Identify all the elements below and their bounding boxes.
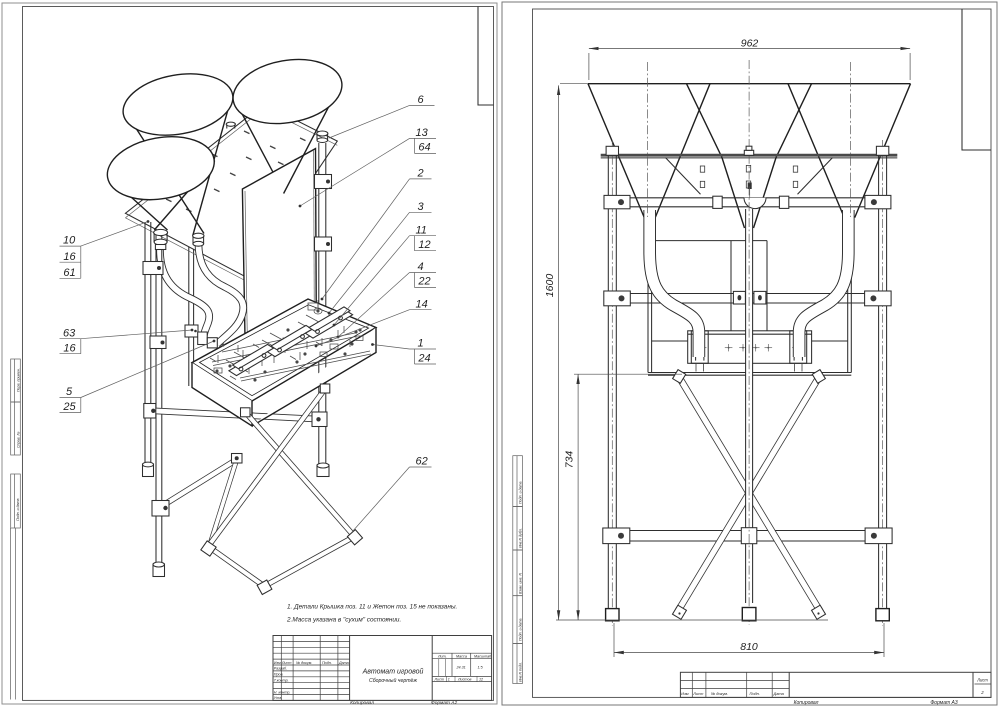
svg-text:Лит.: Лит. bbox=[437, 655, 447, 659]
svg-text:Инв.N дубл.: Инв.N дубл. bbox=[518, 528, 522, 548]
svg-text:2.Масса указана в "сухим" сост: 2.Масса указана в "сухим" состоянии. bbox=[286, 617, 401, 624]
svg-text:62: 62 bbox=[416, 456, 428, 468]
svg-text:Подп. и дата: Подп. и дата bbox=[518, 482, 522, 505]
svg-text:64: 64 bbox=[418, 142, 430, 154]
svg-text:734: 734 bbox=[564, 451, 576, 469]
svg-text:Лист: Лист bbox=[976, 677, 988, 682]
svg-text:13: 13 bbox=[416, 127, 429, 139]
svg-text:Перв. примен.: Перв. примен. bbox=[17, 368, 21, 392]
svg-text:1: 1 bbox=[448, 678, 450, 682]
svg-text:Масштаб: Масштаб bbox=[474, 655, 492, 659]
svg-text:24: 24 bbox=[417, 352, 430, 364]
svg-text:Инв.N подл.: Инв.N подл. bbox=[518, 662, 522, 682]
svg-text:Т.контр.: Т.контр. bbox=[274, 679, 289, 683]
svg-text:Утв.: Утв. bbox=[274, 696, 282, 700]
svg-text:12: 12 bbox=[418, 239, 430, 251]
svg-text:1600: 1600 bbox=[544, 274, 556, 298]
svg-text:4: 4 bbox=[418, 261, 424, 273]
svg-text:Лист: Лист bbox=[434, 678, 445, 682]
svg-text:11: 11 bbox=[416, 224, 427, 236]
svg-text:Н. контр.: Н. контр. bbox=[274, 690, 291, 694]
svg-text:Дата: Дата bbox=[338, 661, 349, 665]
svg-text:Копировал: Копировал bbox=[350, 700, 374, 706]
svg-text:Взам. инв. N: Взам. инв. N bbox=[518, 573, 522, 594]
svg-text:Лист: Лист bbox=[692, 691, 704, 696]
svg-text:810: 810 bbox=[740, 641, 758, 653]
svg-text:10: 10 bbox=[63, 235, 76, 247]
svg-text:Копировал: Копировал bbox=[794, 700, 819, 706]
svg-text:Масса: Масса bbox=[456, 655, 467, 659]
svg-text:Изм: Изм bbox=[681, 691, 689, 696]
svg-text:Листов: Листов bbox=[457, 678, 472, 682]
svg-text:Пров.: Пров. bbox=[274, 673, 284, 677]
svg-text:Подп. и дата: Подп. и дата bbox=[16, 499, 20, 522]
svg-text:14: 14 bbox=[416, 298, 428, 310]
svg-text:63: 63 bbox=[63, 327, 76, 339]
svg-text:Сборочный чертёж: Сборочный чертёж bbox=[369, 677, 417, 684]
svg-text:3: 3 bbox=[418, 201, 425, 213]
svg-text:962: 962 bbox=[741, 38, 759, 50]
svg-text:16: 16 bbox=[63, 251, 76, 263]
svg-text:5: 5 bbox=[66, 386, 73, 398]
svg-text:61: 61 bbox=[63, 267, 75, 279]
svg-text:12: 12 bbox=[479, 678, 483, 682]
svg-text:Подп.: Подп. bbox=[322, 661, 332, 665]
svg-text:1: 1 bbox=[418, 338, 424, 350]
svg-text:22: 22 bbox=[417, 276, 430, 288]
svg-text:24.31: 24.31 bbox=[456, 666, 466, 670]
svg-text:2: 2 bbox=[417, 168, 424, 180]
svg-text:Автомат игровой: Автомат игровой bbox=[362, 668, 424, 676]
svg-text:Дата: Дата bbox=[773, 691, 785, 696]
svg-text:Разраб.: Разраб. bbox=[274, 667, 287, 671]
svg-text:Подп. и дата: Подп. и дата bbox=[518, 619, 522, 642]
svg-text:1. Детали Крышка поз. 11 и Жет: 1. Детали Крышка поз. 11 и Жетон поз. 15… bbox=[287, 604, 457, 611]
svg-text:25: 25 bbox=[62, 401, 76, 413]
svg-text:6: 6 bbox=[418, 94, 425, 106]
svg-text:16: 16 bbox=[63, 342, 76, 354]
svg-text:Подп.: Подп. bbox=[750, 691, 760, 696]
svg-text:№ докум.: № докум. bbox=[711, 691, 728, 696]
svg-text:Изм: Изм bbox=[274, 661, 281, 665]
svg-text:Формат А3: Формат А3 bbox=[930, 700, 958, 706]
svg-text:Справ. №: Справ. № bbox=[17, 432, 21, 448]
svg-text:Формат А2: Формат А2 bbox=[431, 700, 458, 706]
svg-text:№ докум.: № докум. bbox=[296, 661, 312, 665]
svg-text:Лист: Лист bbox=[281, 661, 292, 665]
